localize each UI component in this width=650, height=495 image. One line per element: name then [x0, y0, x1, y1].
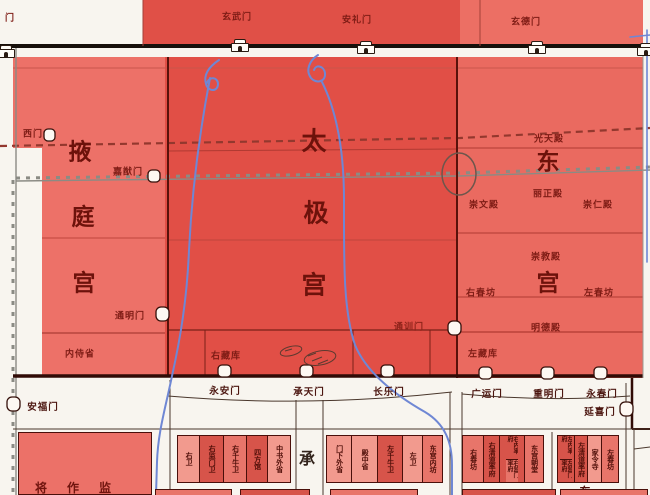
taiji-name-char-3: 宫 — [301, 274, 326, 299]
office-box-sifangguan: 四方馆 — [246, 435, 268, 483]
office-box-zuonei-zuojianmen-lvfu: 左内率府 左监门率府 — [557, 435, 575, 483]
office-box-zhongshuwaisheng: 中书外省 — [267, 435, 291, 483]
jiangzuojian-label: 将作监 — [35, 479, 131, 495]
xuande-gate-label: 玄德门 — [511, 15, 541, 28]
office-group-1: 右卫 右监门卫 右千牛卫 四方馆 中书外省 — [178, 435, 291, 483]
zuozangku-label: 左藏库 — [468, 347, 498, 360]
office-label: 东宫内坊 — [429, 445, 436, 473]
office-box-youwei: 右卫 — [177, 435, 200, 483]
mingde-hall-label: 明德殿 — [531, 321, 561, 334]
youzangku-label: 右藏库 — [211, 349, 241, 362]
office-label: 右卫 — [185, 452, 192, 466]
office-box-zuoqingdaolvfu: 左清道率府 — [574, 435, 588, 483]
office-stub — [155, 489, 232, 495]
chongming-gate-label: 重明门 — [533, 386, 565, 400]
anli-gate-label: 安礼门 — [342, 13, 372, 26]
office-box-jialingsi: 家令寺 — [587, 435, 602, 483]
office-label: 左监门率府 — [560, 459, 572, 483]
neishisheng-label: 内侍省 — [65, 347, 95, 360]
office-label: 门下外省 — [335, 445, 342, 473]
office-label: 家令寺 — [591, 449, 598, 470]
office-group-2: 门下外省 殿中省 左千牛卫 左卫 东宫内坊 — [327, 435, 443, 483]
office-label: 四方馆 — [253, 449, 260, 470]
office-box-donggongneifang: 东宫内坊 — [422, 435, 443, 483]
office-label: 右内率府 — [506, 436, 518, 459]
office-label: 左卫 — [409, 452, 416, 466]
yeting-name-char-1: 掖 — [69, 141, 92, 164]
office-box-zuoqianniuwei: 左千牛卫 — [377, 435, 403, 483]
partial-gate-label: 门 — [5, 11, 15, 24]
yeting-palace-area — [42, 148, 165, 376]
office-box-youchunfang: 右春坊 — [462, 435, 484, 483]
street-h2 — [634, 447, 650, 449]
office-label: 右监门卫 — [208, 445, 215, 473]
office-label: 左清道率府 — [577, 442, 584, 477]
tongxun-gate-label: 通训门 — [394, 320, 424, 333]
office-group-3: 右春坊 右清道率府 右内率府 右监门率府 东宫朝堂 — [463, 435, 544, 483]
tongming-gate-label: 通明门 — [115, 309, 145, 322]
office-label: 右千牛卫 — [231, 445, 238, 473]
north-strip-taiji — [143, 0, 460, 46]
yanxi-gate-notch — [620, 402, 633, 416]
office-box-donggongchaotang: 东宫朝堂 — [524, 435, 544, 483]
youchunfang-label: 右春坊 — [466, 286, 496, 299]
office-label: 右春坊 — [469, 449, 476, 470]
office-stub — [240, 489, 310, 495]
office-box-youqingdaolvfu: 右清道率府 — [483, 435, 500, 483]
xuanwu-gate-tower-icon — [231, 39, 249, 52]
yongan-gate-label: 永安门 — [209, 383, 241, 397]
chengtian-street-char: 承 — [299, 445, 315, 469]
office-label: 殿中省 — [361, 449, 368, 470]
office-label: 右监门率府 — [506, 459, 518, 483]
office-label: 左春坊 — [606, 449, 613, 470]
tang-palace-map: 门 玄武门 安礼门 玄德门 掖 庭 宫 西门 嘉猷门 通明门 内侍省 安福门 太… — [0, 0, 650, 495]
east-palace-name-char-2: 宫 — [537, 272, 560, 295]
chongren-hall-label: 崇仁殿 — [583, 198, 613, 211]
north-strip-east — [460, 0, 643, 46]
gate-tower-icon — [0, 45, 15, 58]
yeting-name-char-3: 宫 — [73, 272, 96, 295]
taiji-name-char-1: 太 — [301, 130, 326, 155]
zuochunfang-label: 左春坊 — [584, 286, 614, 299]
yanxi-gate-label: 延喜门 — [584, 404, 616, 418]
chengtian-gate-label: 承天门 — [293, 384, 325, 398]
lizheng-hall-label: 丽正殿 — [533, 187, 563, 200]
anli-gate-tower-icon — [357, 41, 375, 54]
east-palace-name-char-1: 东 — [537, 151, 560, 174]
jiangzuojian-block: 将作监 — [18, 432, 152, 495]
xuande-gate-tower-icon — [528, 41, 546, 54]
office-stub — [330, 489, 418, 495]
office-label: 中书外省 — [275, 445, 282, 473]
office-label: 左内率府 — [560, 436, 572, 459]
gate-tower-icon — [637, 43, 650, 56]
office-box-menxiawaisheng: 门下外省 — [326, 435, 352, 483]
office-label: 右清道率府 — [488, 442, 495, 477]
office-box-younei-youjianmen-lvfu: 右内率府 右监门率府 — [499, 435, 525, 483]
office-box-zuochunfang: 左春坊 — [601, 435, 619, 483]
ximen-gate-label: 西门 — [23, 127, 43, 140]
office-label: 东宫朝堂 — [530, 445, 537, 473]
office-box-youqianniuwei: 右千牛卫 — [223, 435, 247, 483]
office-box-dianzhongsheng: 殿中省 — [351, 435, 378, 483]
office-stub — [560, 489, 648, 495]
jiayou-gate-label: 嘉猷门 — [113, 165, 143, 178]
yongchun-gate-label: 永春门 — [586, 386, 618, 400]
office-group-4: 左内率府 左监门率府 左清道率府 家令寺 左春坊 — [558, 435, 619, 483]
chongwen-hall-label: 崇文殿 — [469, 198, 499, 211]
office-stub — [462, 489, 556, 495]
chongjiao-hall-label: 崇教殿 — [531, 250, 561, 263]
office-label: 左千牛卫 — [386, 445, 393, 473]
guangyun-gate-label: 广运门 — [471, 386, 503, 400]
guangtian-hall-label: 光天殿 — [534, 132, 564, 145]
changle-gate-label: 长乐门 — [373, 384, 405, 398]
office-box-youjianmenwei: 右监门卫 — [199, 435, 224, 483]
office-box-zuowei: 左卫 — [402, 435, 423, 483]
anfu-gate-label: 安福门 — [27, 399, 59, 413]
anfu-gate-notch — [7, 397, 20, 411]
yeting-name-char-2: 庭 — [72, 206, 95, 229]
taiji-name-char-2: 极 — [303, 202, 328, 227]
xuanwu-gate-label: 玄武门 — [222, 10, 252, 23]
